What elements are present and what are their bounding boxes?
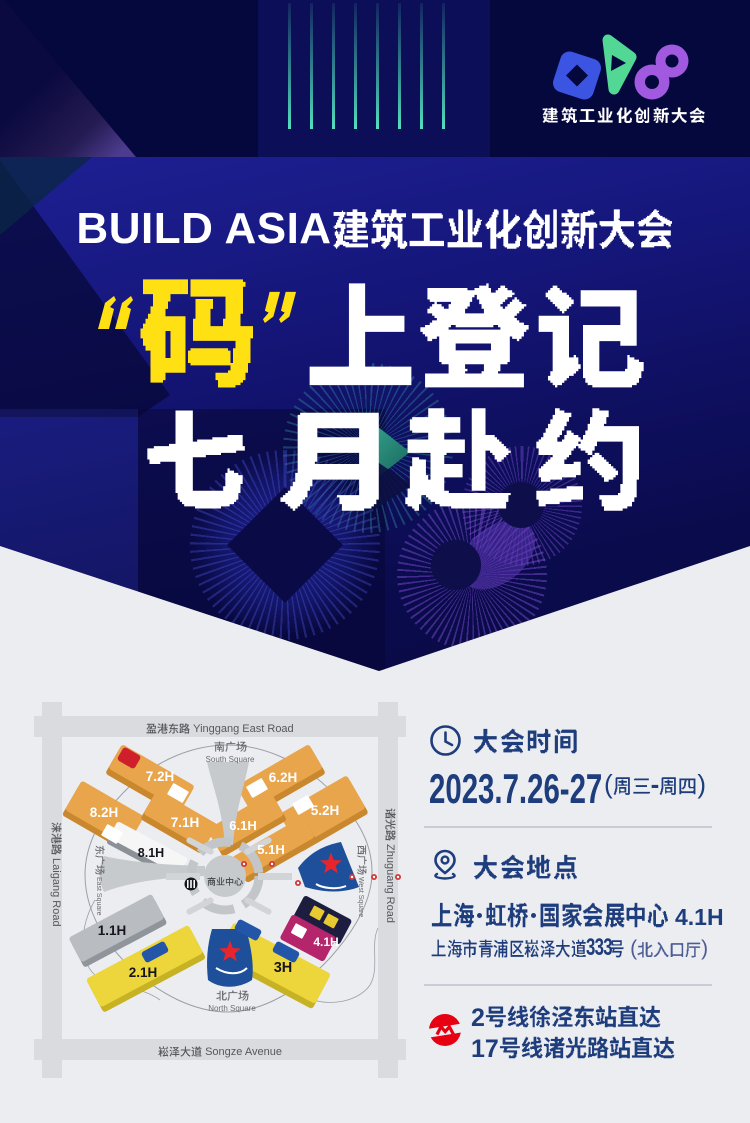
svg-text:8.1H: 8.1H — [138, 846, 164, 860]
svg-text:5.2H: 5.2H — [311, 803, 340, 818]
svg-text:2.1H: 2.1H — [129, 965, 158, 980]
svg-text:7.1H: 7.1H — [171, 815, 200, 830]
svg-text:6.2H: 6.2H — [269, 770, 298, 785]
svg-text:7.2H: 7.2H — [146, 769, 175, 784]
svg-text:4.1H: 4.1H — [313, 935, 338, 949]
svg-text:1.1H: 1.1H — [98, 923, 127, 938]
svg-text:5.1H: 5.1H — [257, 842, 284, 857]
svg-text:8.2H: 8.2H — [90, 805, 119, 820]
svg-text:6.1H: 6.1H — [229, 818, 256, 833]
svg-text:3H: 3H — [274, 960, 293, 976]
